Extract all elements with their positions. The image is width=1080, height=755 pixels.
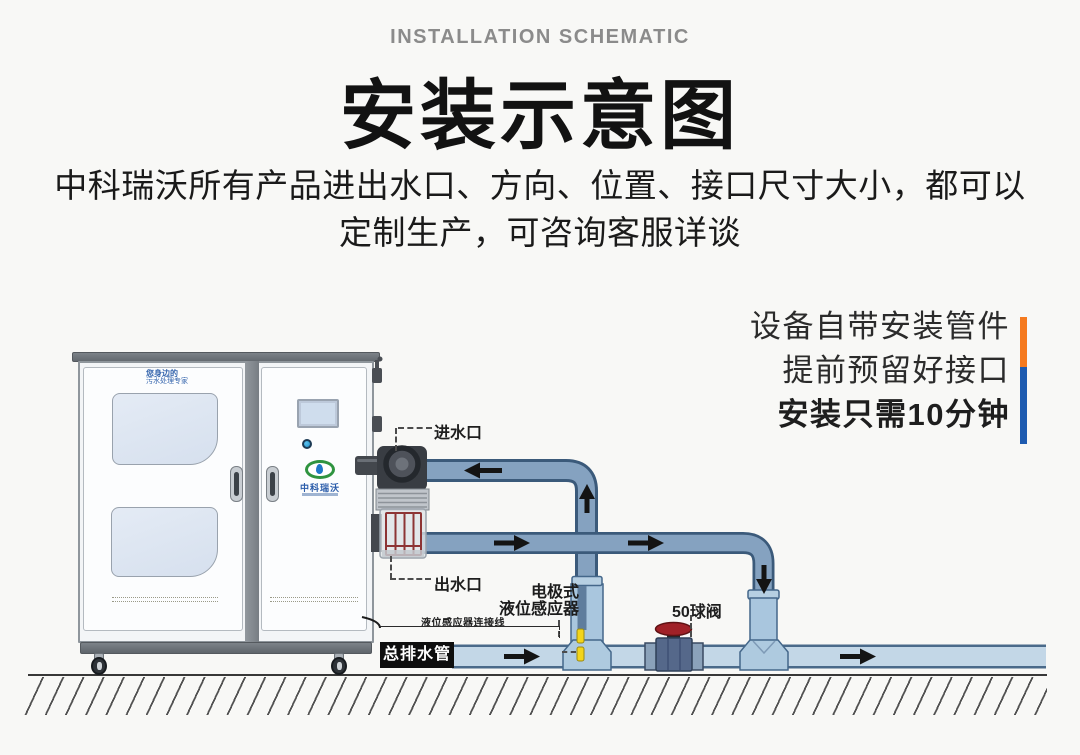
ball-valve-leader-line [690, 615, 692, 637]
accent-bar [1020, 317, 1027, 444]
machine-cabinet: 您身边的 污水处理专家 中科瑞沃 [72, 352, 384, 678]
valve-handle [656, 623, 692, 636]
filter-cage [386, 513, 421, 555]
promo-line-2: 提前预留好接口 [750, 349, 1010, 393]
sensor-label-line-1: 电极式 [493, 584, 579, 601]
caster-hub [97, 662, 102, 670]
sensor-label-line-2: 液位感应器 [493, 601, 579, 618]
water-outlet-label: 出水口 [434, 571, 482, 595]
ball-valve [645, 623, 703, 672]
electrode-rod-lower [577, 647, 584, 661]
valve-stem [667, 629, 680, 641]
brand-tagline-line-2: 污水处理专家 [146, 378, 188, 386]
inlet-elbow [377, 446, 427, 491]
electrode-rod-upper [577, 629, 584, 643]
control-panel-display [297, 399, 339, 428]
right-door-handle [266, 466, 279, 502]
promo-line-3: 安装只需10分钟 [750, 393, 1010, 437]
promo-text: 设备自带安装管件 提前预留好接口 安装只需10分钟 [750, 305, 1010, 437]
left-door-handle [230, 466, 243, 502]
brand-tagline: 您身边的 污水处理专家 [146, 370, 188, 386]
valve-body [656, 638, 692, 671]
sensor-cable-line [380, 626, 560, 627]
sensor-leader-line [562, 651, 576, 653]
ground-hatching [24, 677, 1047, 715]
electrode-sensor-label: 电极式 液位感应器 [493, 584, 579, 618]
description-line-2: 定制生产，可咨询客服详谈 [0, 209, 1080, 256]
main-drain-pipe-label: 总排水管 [380, 642, 454, 668]
outlet-leader-line [390, 578, 431, 580]
outlet-leader-line [390, 556, 392, 579]
machine-door-divider [245, 361, 259, 643]
brand-logo-subline [302, 493, 338, 496]
filter-housing [380, 509, 426, 558]
page-title: 安装示意图 [0, 54, 1080, 164]
caster-hub [337, 662, 342, 670]
tee-fitting-2 [740, 590, 788, 670]
door-window-top [112, 393, 218, 465]
inlet-leader-line [395, 428, 397, 451]
description-text: 中科瑞沃所有产品进出水口、方向、位置、接口尺寸大小，都可以 定制生产，可咨询客服… [0, 162, 1080, 256]
machine-base [80, 642, 372, 654]
promo-line-1: 设备自带安装管件 [750, 305, 1010, 349]
installation-schematic-page: { "header": { "subtitle_en": "INSTALLATI… [0, 0, 1080, 755]
vent-perforation-right [270, 597, 358, 602]
brand-tagline-line-1: 您身边的 [146, 370, 188, 378]
vent-perforation-left [112, 597, 218, 602]
ball-valve-label: 50球阀 [672, 598, 722, 622]
subtitle-en: INSTALLATION SCHEMATIC [0, 26, 1080, 49]
power-indicator-light [302, 439, 312, 449]
flow-arrows [464, 463, 876, 665]
water-inlet-label: 进水口 [434, 419, 482, 443]
accent-bar-blue [1020, 367, 1027, 444]
water-drop-icon [316, 464, 323, 474]
description-line-1: 中科瑞沃所有产品进出水口、方向、位置、接口尺寸大小，都可以 [0, 162, 1080, 209]
sensor-cable-tick [559, 627, 560, 638]
tee-fitting-1 [563, 640, 611, 670]
accent-bar-orange [1020, 317, 1027, 367]
door-window-bottom [111, 507, 218, 577]
inlet-leader-line [398, 427, 432, 429]
